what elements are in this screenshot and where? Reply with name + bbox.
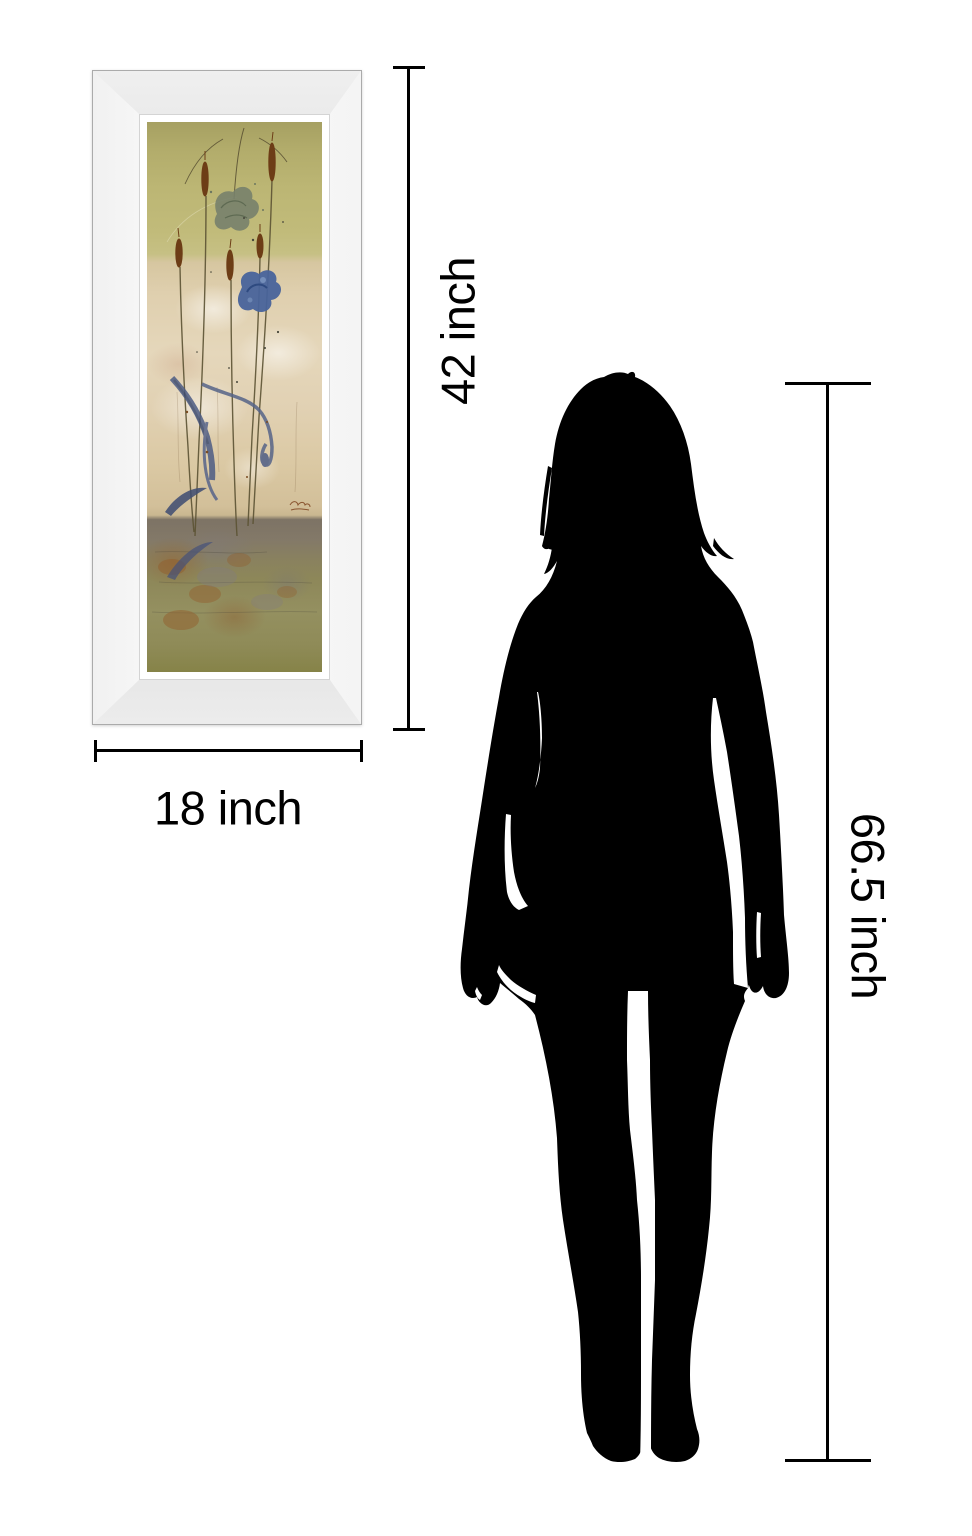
person-height-dimension-label: 66.5 inch <box>841 813 896 999</box>
artwork-signature <box>290 502 310 510</box>
height-dimension-bottom-tick <box>393 728 425 731</box>
artwork-sage-flower <box>210 183 264 231</box>
width-dimension-right-tick <box>360 740 363 762</box>
artwork-blue-flower <box>238 270 281 312</box>
width-dimension-line <box>95 749 363 752</box>
height-dimension-top-tick <box>393 66 425 69</box>
width-dimension-label: 18 inch <box>154 781 302 836</box>
width-dimension-left-tick <box>94 740 97 762</box>
artwork-detail-svg <box>147 122 322 672</box>
framed-print <box>92 70 362 725</box>
person-height-top-tick <box>785 382 871 385</box>
artwork-stems <box>180 128 287 536</box>
person-height-bottom-tick <box>785 1459 871 1462</box>
print-artwork <box>147 122 322 672</box>
person-height-dimension-line <box>826 383 829 1461</box>
woman-silhouette-svg <box>455 368 795 1466</box>
size-comparison-diagram: 42 inch 18 inch 66.5 inch <box>0 0 972 1536</box>
height-dimension-line <box>407 67 410 731</box>
